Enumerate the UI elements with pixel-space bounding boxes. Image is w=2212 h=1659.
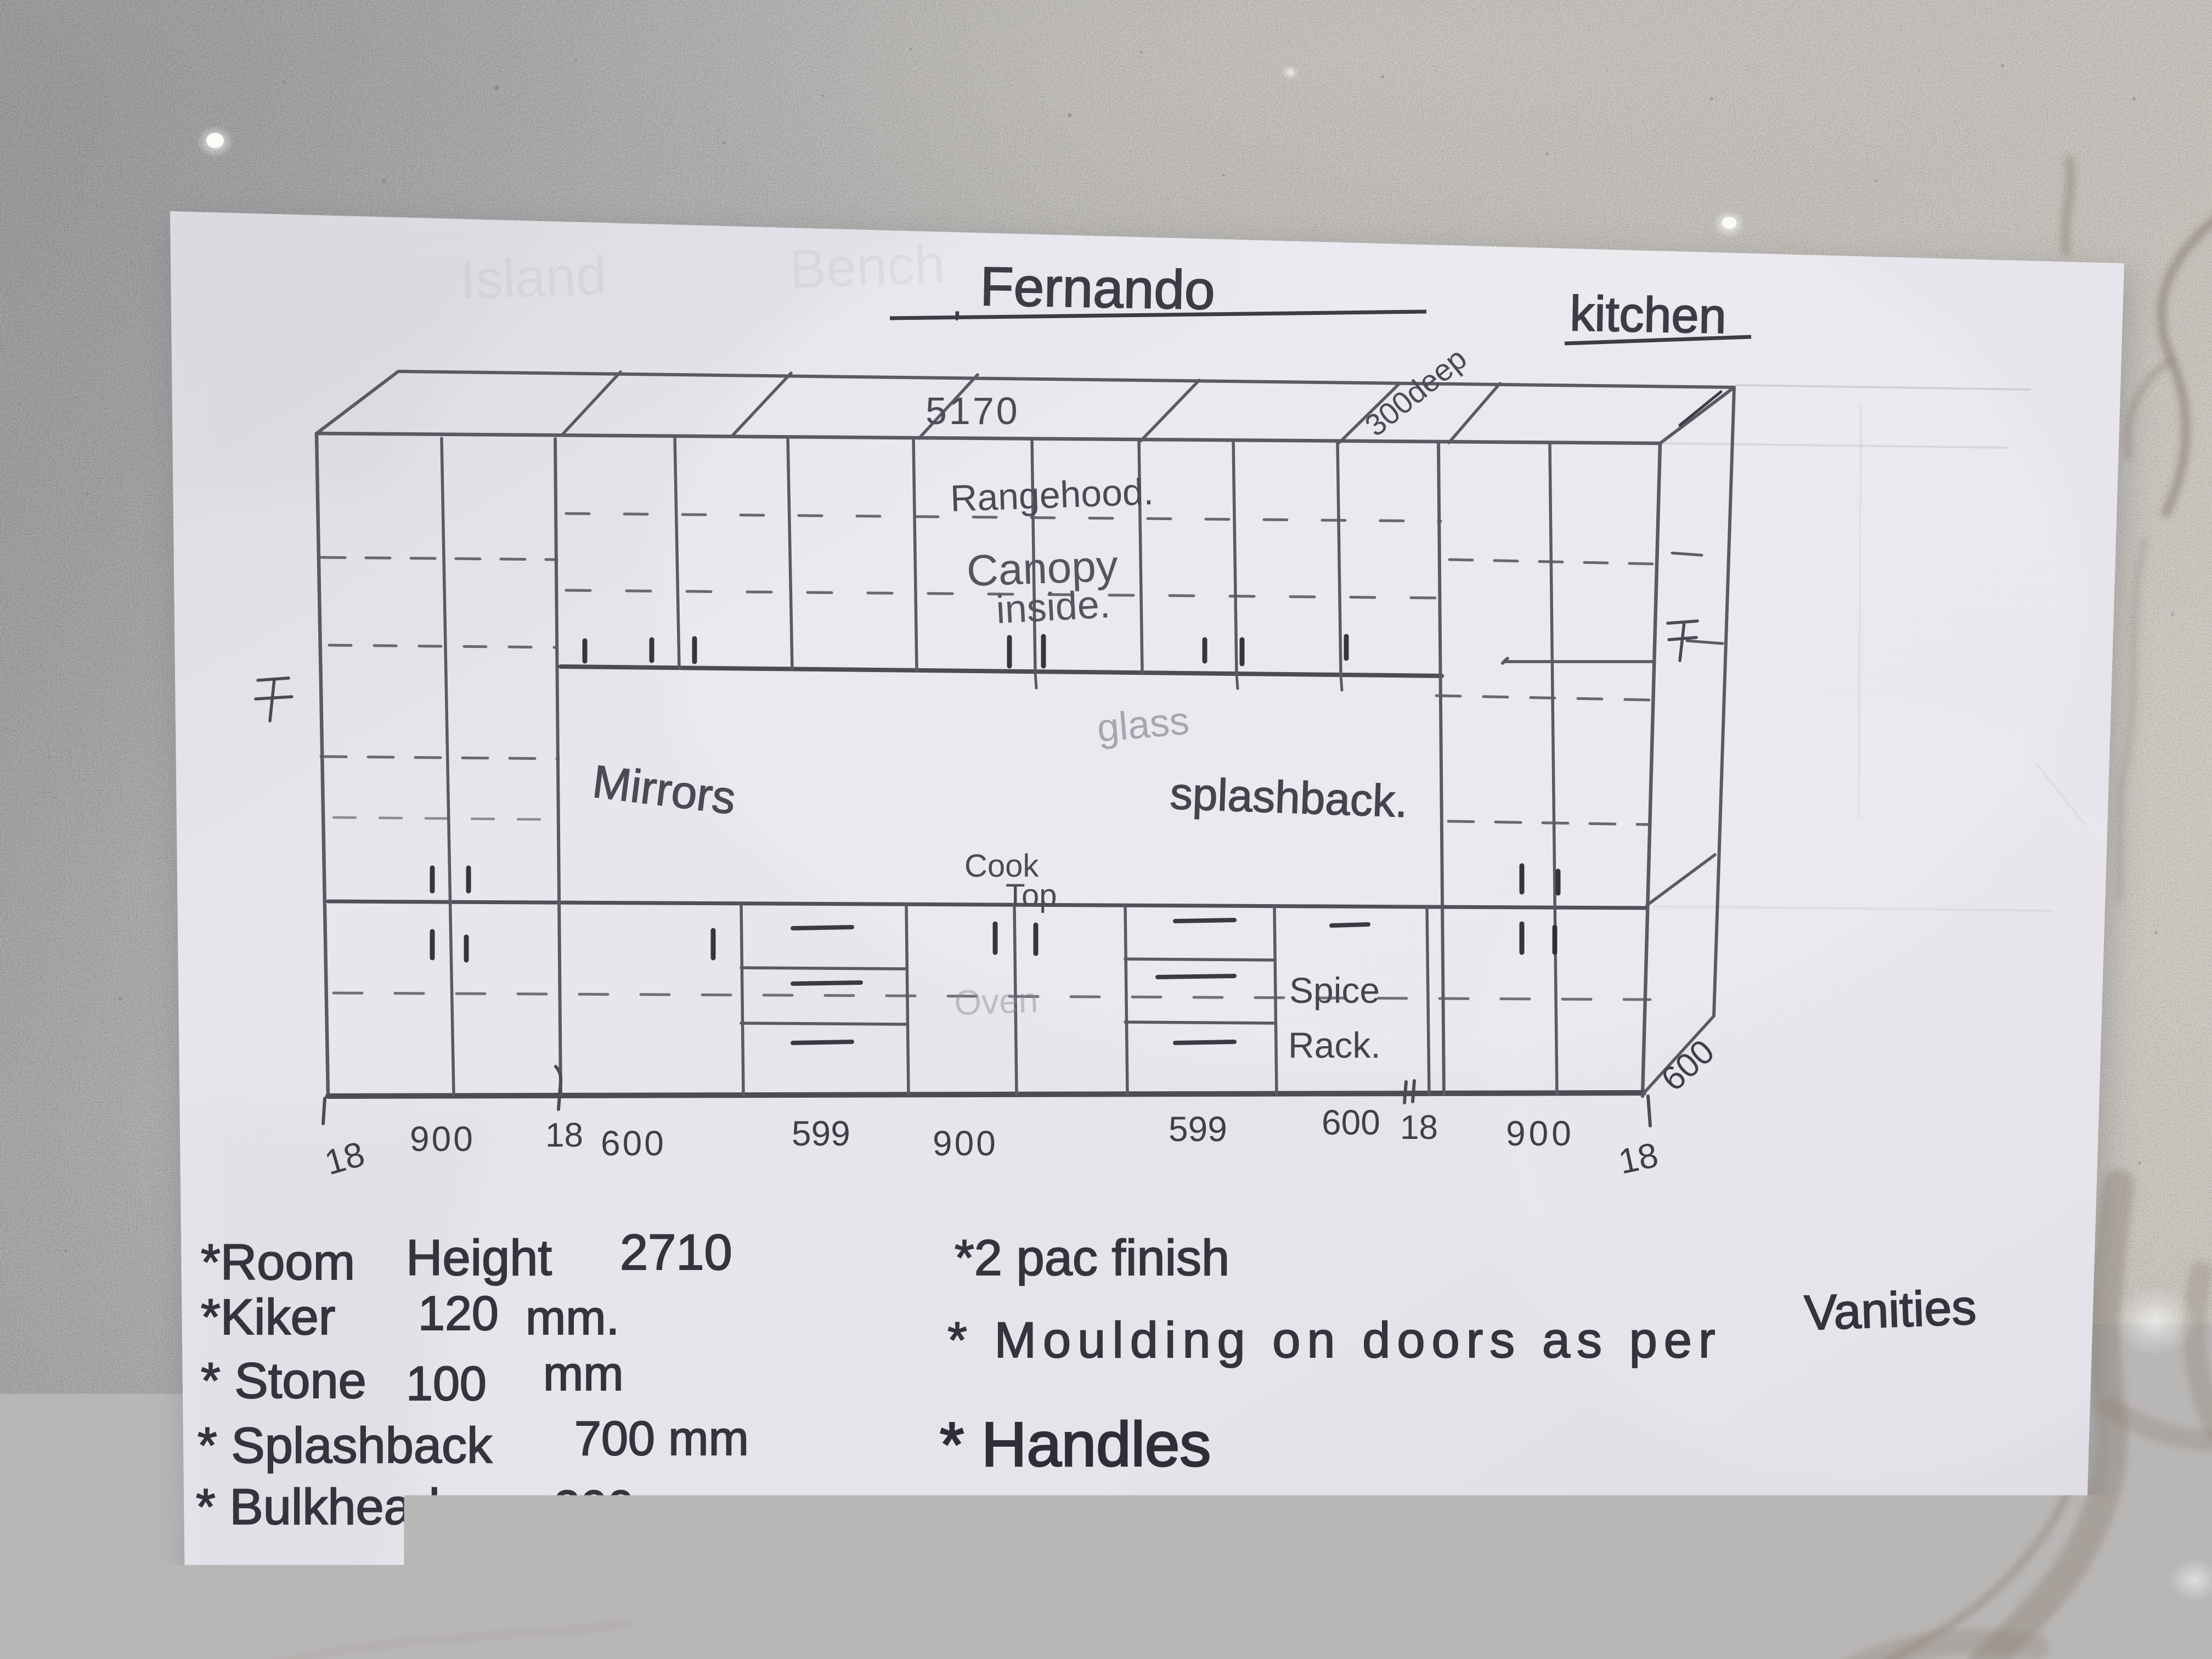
svg-text:*2 pac finish: *2 pac finish [955,1230,1229,1286]
svg-text:Rack.: Rack. [1288,1025,1381,1065]
svg-text:* Bulkhead: * Bulkhead [196,1479,440,1535]
svg-text:Oven: Oven [953,980,1039,1023]
svg-text:glass: glass [1095,699,1190,751]
svg-text:18: 18 [1400,1109,1438,1147]
svg-text:kitchen: kitchen [1570,286,1727,344]
svg-text:inside.: inside. [995,582,1111,632]
svg-text:Spice: Spice [1289,970,1380,1011]
svg-text:900: 900 [933,1124,998,1163]
svg-text:* Splashback: * Splashback [198,1418,493,1474]
svg-text:mm.: mm. [526,1290,619,1345]
svg-text:900: 900 [1506,1114,1575,1153]
svg-text:Height: Height [406,1230,552,1286]
svg-text:18: 18 [1615,1135,1662,1181]
svg-text:600: 600 [601,1124,666,1163]
svg-text:700 mm: 700 mm [574,1411,749,1465]
svg-text:100: 100 [406,1356,487,1410]
svg-text:600: 600 [1322,1103,1380,1142]
svg-text:Top: Top [1006,878,1057,913]
svg-text:Island: Island [459,245,608,311]
svg-text:2710: 2710 [620,1224,732,1280]
svg-text:Rangehood.: Rangehood. [950,471,1154,520]
svg-text:Bench: Bench [788,233,946,300]
svg-text:599: 599 [792,1114,850,1153]
svg-text:Fernando: Fernando [980,256,1216,321]
svg-text:900: 900 [410,1119,475,1159]
svg-text:*Kiker: *Kiker [201,1289,335,1345]
svg-text:120: 120 [418,1286,499,1340]
svg-text:* Handles: * Handles [940,1410,1211,1480]
svg-text:*Room: *Room [201,1234,355,1290]
svg-text:Vanities: Vanities [1803,1280,1977,1341]
svg-text:* Moulding on doors as per: * Moulding on doors as per [947,1312,1722,1368]
svg-text:18: 18 [545,1116,583,1154]
svg-text:mm: mm [543,1346,624,1401]
svg-text:599: 599 [1169,1109,1227,1149]
svg-text:200mm.: 200mm. [554,1480,728,1534]
svg-text:splashback.: splashback. [1169,769,1408,827]
svg-text:* Stone: * Stone [201,1353,366,1409]
svg-text:5170: 5170 [926,390,1020,432]
